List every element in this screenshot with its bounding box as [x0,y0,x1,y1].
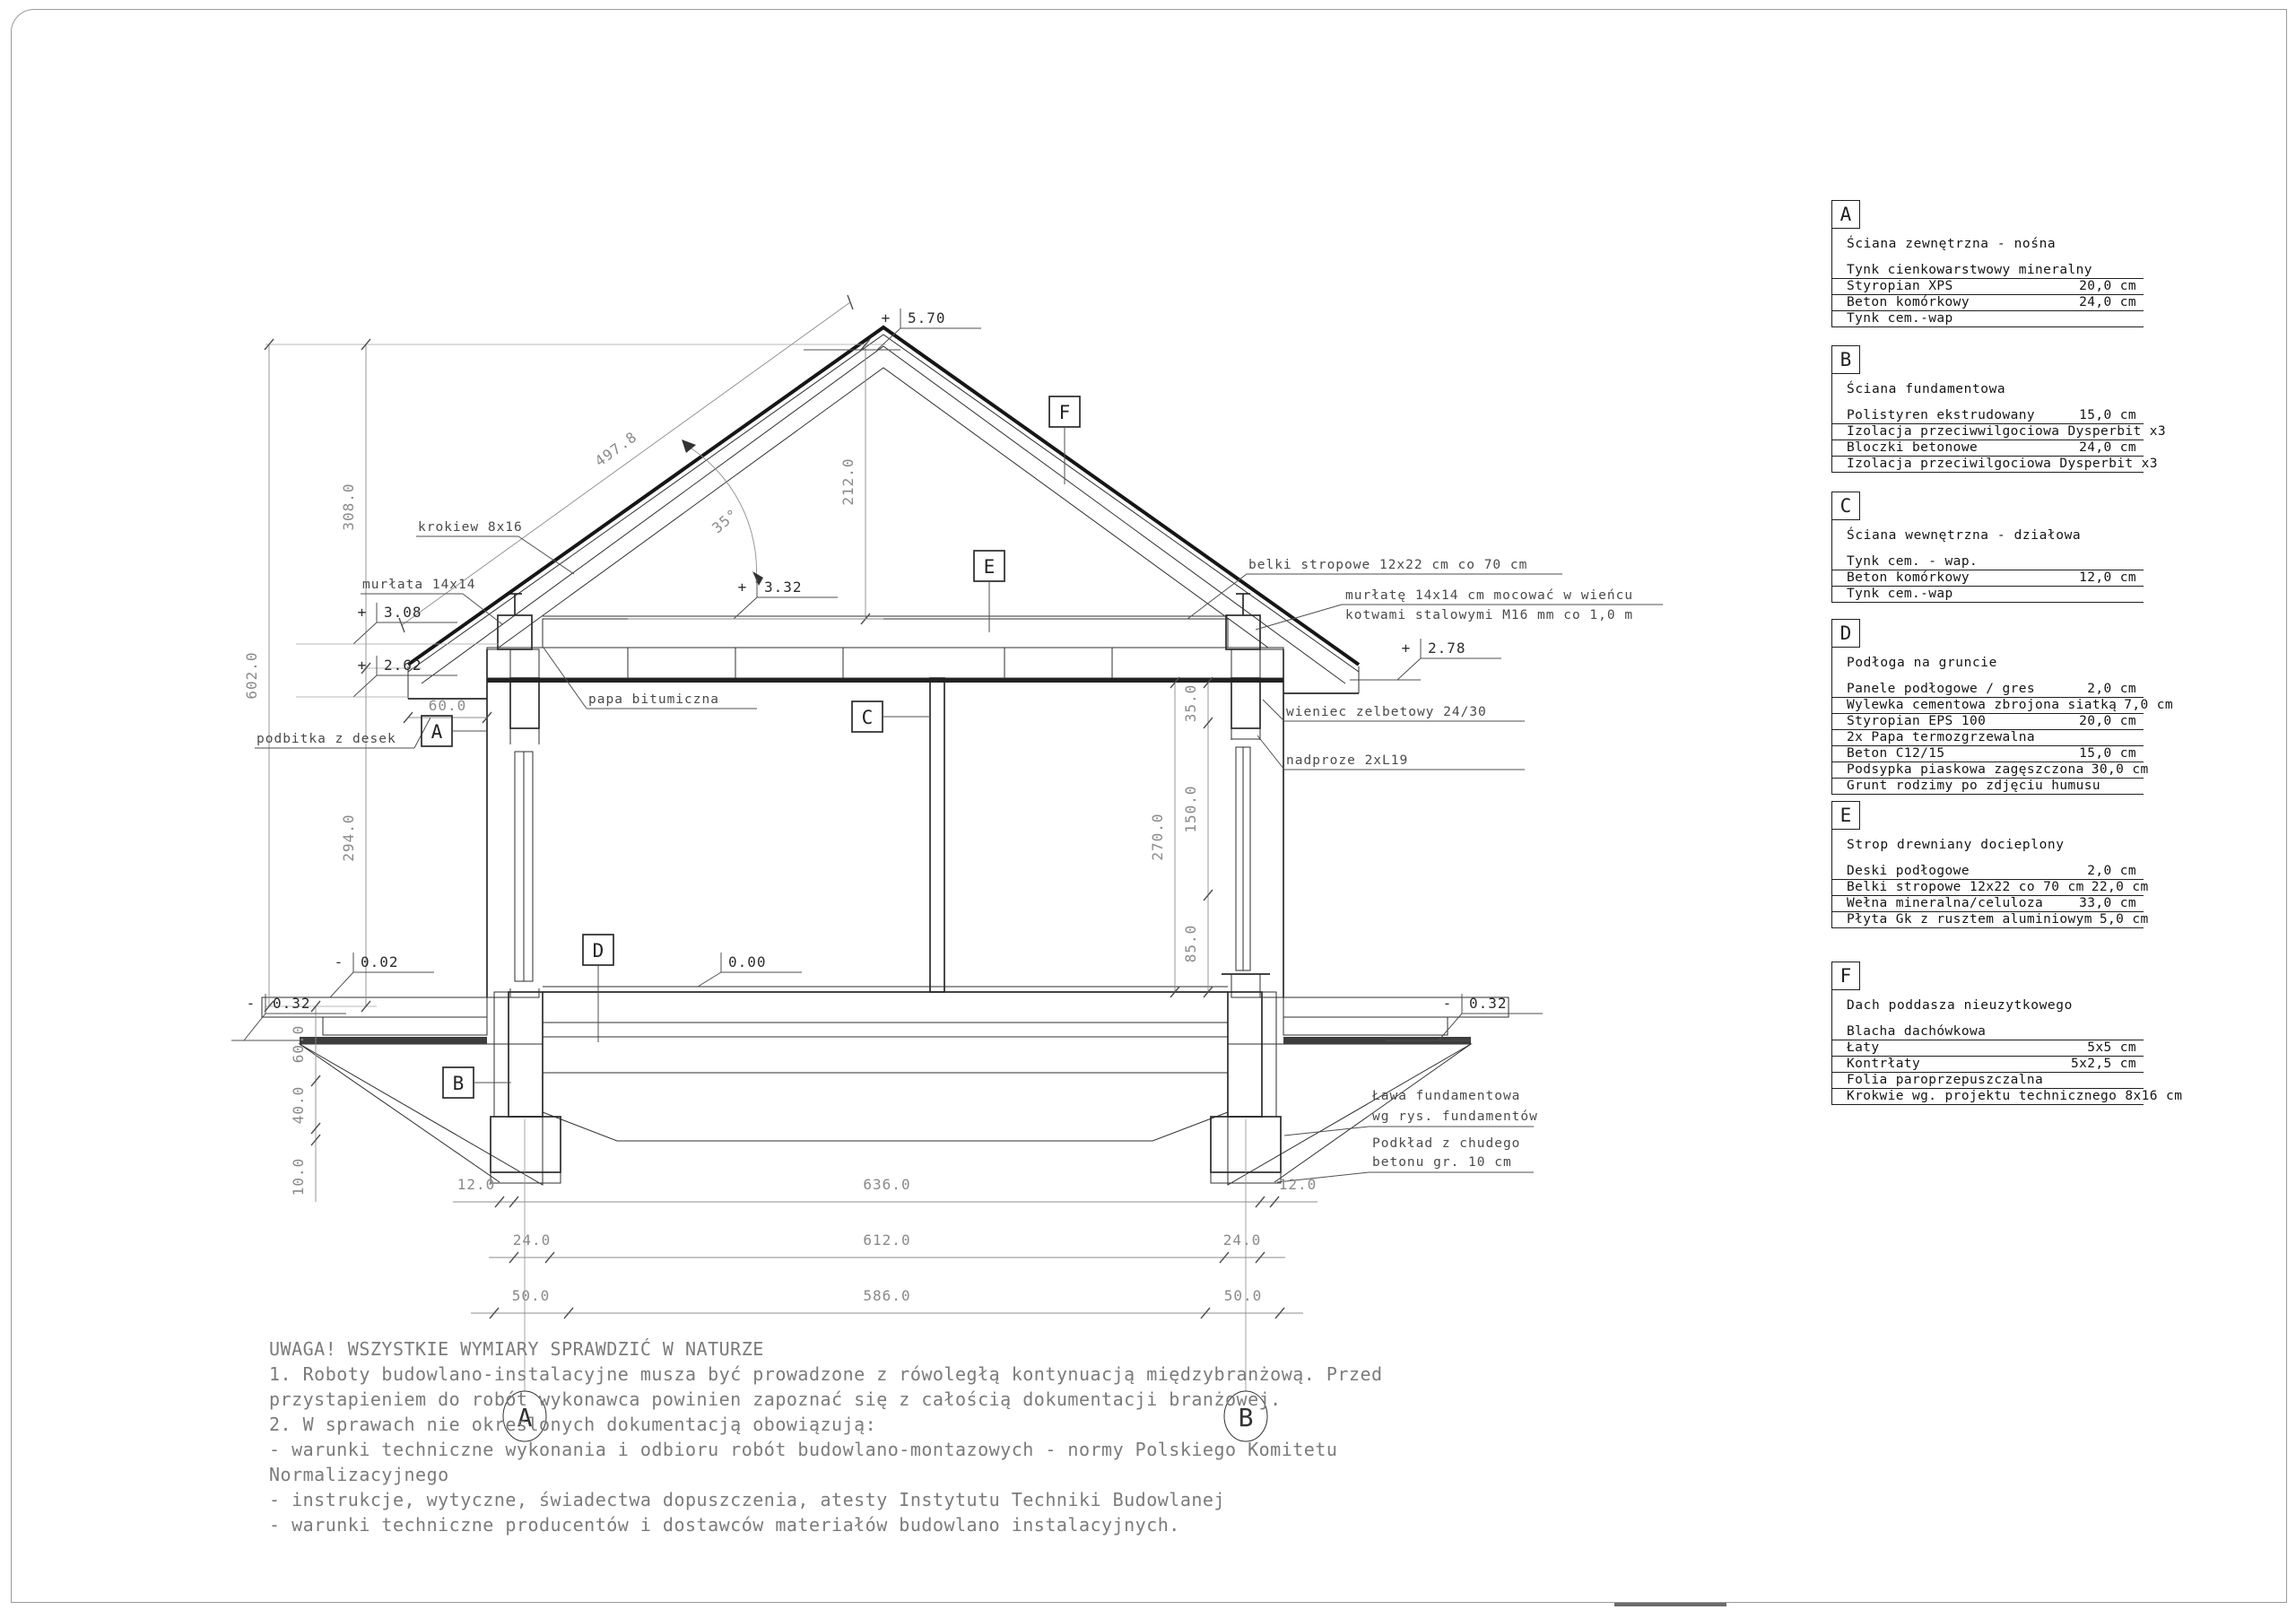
legend-row: Bloczki betonowe24,0 cm [1832,440,2144,457]
roof-sheathing-line [422,346,1345,683]
roof [408,327,1359,699]
legend-row: Tynk cem.-wap [1832,311,2144,327]
ceiling-insulation [487,648,1283,678]
legend-row: Polistyren ekstrudowany15,0 cm [1832,408,2144,424]
floor-insulation [543,992,1228,1023]
wall-plates [498,594,1260,649]
label-ring-beam: wieniec zelbetowy 24/30 [1286,705,1487,719]
ceiling-plaster [487,678,1283,683]
floor-on-ground [543,987,1228,1073]
legend-row: Deski podłogowe2,0 cm [1832,864,2144,880]
note-line: Normalizacyjnego [269,1464,1399,1489]
roof-covering [408,327,1359,665]
dim-b3-right: 50.0 [1224,1287,1263,1304]
legend-title-c: Ściana wewnętrzna - działowa [1832,519,2144,543]
legend-row: Płyta Gk z rusztem aluminiowym5,0 cm [1832,912,2144,928]
level-attic-sign: + [738,579,748,596]
legend-row: Folia paroprzepuszczalna [1832,1073,2144,1089]
marker-box-d: D [583,935,613,1042]
level-ridge-value: 5.70 [908,309,946,326]
note-line: UWAGA! WSZYSTKIE WYMIARY SPRAWDZIĆ W NAT… [269,1338,1399,1363]
angle-arrow-bottom [752,571,763,586]
roof-battens-line [408,335,1359,672]
svg-text:D: D [593,940,604,962]
floor-sand-bed [543,1037,1228,1073]
legend-title-d: Podłoga na gruncie [1832,647,2144,670]
leader-labels: krokiew 8x16 murłata 14x14 podbitka z de… [255,520,1663,1182]
dim-roof-angle: 35° [709,505,742,536]
dim-b3-center: 586.0 [863,1287,910,1304]
windows [508,740,1270,988]
label-lintel: nadproze 2xL19 [1286,753,1408,768]
level-ground-right-value: 0.32 [1469,995,1508,1012]
foundation-wall-left [509,992,543,1117]
dim-ridge-offset: 212.0 [839,457,857,505]
note-line: 1. Roboty budowlano-instalacyjne musza b… [269,1363,1399,1388]
marker-box-c: C [852,701,930,732]
legend-letter-c: C [1840,495,1852,517]
legend-row: Tynk cem.-wap [1832,587,2144,603]
dim-b1-left: 12.0 [457,1176,496,1193]
note-line: przystapieniem do robót wykonawca powini… [269,1388,1399,1414]
footing-left [491,1117,561,1172]
level-eave-right-sign: + [1402,640,1412,657]
level-terrace-value: 0.02 [361,953,399,970]
legend-letter-box-a: A [1831,200,1860,229]
svg-text:C: C [862,707,874,728]
legend-letter-box-e: E [1831,801,1860,830]
level-attic: + 3.32 [628,578,883,619]
legend-block-e: E Strop drewniany docieplony Deski podło… [1831,801,2144,928]
level-ground-right-sign: - [1443,995,1453,1012]
legend-title-f: Dach poddasza nieuzytkowego [1832,989,2144,1013]
foundations [491,992,1281,1183]
dim-b3-left: 50.0 [512,1287,551,1304]
label-plate-anchoring-1: murłatę 14x14 cm mocować w wieńcu [1345,588,1633,603]
legend-letter-box-f: F [1831,962,1860,990]
foundation-insulation-right [1262,992,1276,1117]
wall-left-insulation [487,649,510,997]
level-murlata-sign: + [358,604,368,621]
legend-block-a: A Ściana zewnętrzna - nośna Tynk cienkow… [1831,200,2144,327]
legend-letter-a: A [1840,204,1852,225]
label-plate-anchoring-2: kotwami stalowymi M16 mm co 1,0 m [1345,608,1633,622]
label-wall-plate: murłata 14x14 [362,578,476,592]
legend-row: Grunt rodzimy po zdjęciu humusu [1832,779,2144,795]
ring-beam-left [510,678,539,728]
legend-block-f: F Dach poddasza nieuzytkowego Blacha dac… [1831,962,2144,1105]
label-bitumen-felt: papa bitumiczna [588,692,719,707]
marker-box-a: A [422,716,487,746]
note-line: - instrukcje, wytyczne, świadectwa dopus… [269,1489,1399,1514]
label-blinding-1: Podkład z chudego [1372,1136,1520,1151]
general-notes: UWAGA! WSZYSTKIE WYMIARY SPRAWDZIĆ W NAT… [269,1338,1399,1539]
legend-row: Wełna mineralna/celuloza33,0 cm [1832,896,2144,912]
legend-row: Blacha dachówkowa [1832,1024,2144,1040]
level-ground-left-value: 0.32 [273,995,311,1012]
legend-title-e: Strop drewniany docieplony [1832,829,2144,852]
lintel-right [1231,728,1260,739]
label-footing-1: Ława fundamentowa [1371,1089,1520,1103]
legend-title-a: Ściana zewnętrzna - nośna [1832,228,2144,251]
legend-letter-box-d: D [1831,619,1860,648]
legend-row: Beton komórkowy24,0 cm [1832,295,2144,311]
foundation-wall-right [1228,992,1262,1117]
label-rafter: krokiew 8x16 [418,520,523,535]
partition-wall [930,678,944,992]
legend-row: Wylewka cementowa zbrojona siatką7,0 cm [1832,698,2144,714]
legend-row: 2x Papa termozgrzewalna [1832,730,2144,746]
legend-block-c: C Ściana wewnętrzna - działowa Tynk cem.… [1831,492,2144,603]
ceiling [487,616,1283,683]
dim-depth-1: 60.0 [290,1025,307,1064]
dim-b2-right: 24.0 [1223,1231,1262,1249]
dim-b1-right: 12.0 [1279,1176,1318,1193]
marker-box-e: E [974,551,1004,632]
ceiling-wool [543,619,1228,648]
membrane-left [300,1037,487,1044]
legend-letter-box-b: B [1831,345,1860,374]
dim-rafter-length: 497.8 [592,428,640,470]
note-line: 2. W sprawach nie okreslonych dokumentac… [269,1414,1399,1439]
legend-letter-f: F [1840,965,1852,987]
legend-row: Beton C12/1515,0 cm [1832,746,2144,762]
level-eave-left-value: 2.62 [384,657,422,674]
level-ridge-sign: + [882,309,891,326]
level-terrace: - 0.02 [330,953,434,997]
label-ceiling-joists: belki stropowe 12x22 cm co 70 cm [1248,558,1527,572]
marker-box-b: B [443,1067,511,1098]
legend-row: Styropian EPS 10020,0 cm [1832,714,2144,730]
level-ridge: + 5.70 [804,309,981,350]
level-eave-right: + 2.78 [1350,639,1501,680]
foundation-insulation-left [494,992,509,1117]
backfill-left [300,1044,543,1185]
legend-letter-e: E [1840,805,1852,826]
legend-row: Panele podłogowe / gres2,0 cm [1832,682,2144,698]
dim-right-top: 35.0 [1182,684,1199,723]
ceiling-beams [628,648,1112,678]
level-markers: + 5.70 + 3.32 + 3.08 + 2.62 + 2.78 [231,309,1543,1040]
paving-left-bottom [323,1017,487,1035]
dim-depth-2: 40.0 [290,1086,307,1125]
legend-row: Izolacja przeciwwilgociowa Dysperbit x3 [1832,424,2144,440]
svg-text:A: A [431,721,443,743]
window-right-opening [1229,740,1263,974]
svg-text:B: B [453,1073,465,1094]
note-line: - warunki techniczne wykonania i odbioru… [269,1439,1399,1464]
label-blinding-2: betonu gr. 10 cm [1372,1155,1512,1170]
legend-row: Łaty5x5 cm [1832,1040,2144,1057]
legend-row: Podsypka piaskowa zagęszczona30,0 cm [1832,762,2144,779]
dim-roof-zone: 308.0 [340,483,357,530]
rafter-underside [499,368,1268,648]
legend-row: Styropian XPS20,0 cm [1832,279,2144,295]
legend-row: Belki stropowe 12x22 co 70 cm22,0 cm [1832,880,2144,896]
level-floor: 0.00 [698,953,802,987]
dim-right-mid: 150.0 [1182,785,1199,832]
ring-beam-right [1231,678,1260,728]
level-floor-value: 0.00 [728,953,767,970]
dim-b2-center: 612.0 [863,1231,910,1249]
wall-right-insulation [1260,649,1283,997]
label-footing-2: wg rys. fundamentów [1372,1110,1538,1124]
architectural-section-sheet: { "drawing": { "levels": { "ridge": {"si… [0,0,2296,1610]
level-ground-left-sign: - [247,995,257,1012]
dimensions-bottom: 12.0 636.0 12.0 24.0 612.0 24.0 50.0 586… [453,1176,1318,1318]
level-terrace-sign: - [335,953,344,970]
legend-row: Krokwie wg. projektu technicznego 8x16 c… [1832,1089,2144,1105]
legend-row: Kontrłaty5x2,5 cm [1832,1057,2144,1073]
legend-block-b: B Ściana fundamentowa Polistyren ekstrud… [1831,345,2144,473]
legend-row: Izolacja przeciwilgociowa Dysperbit x3 [1832,457,2144,473]
dim-b1-center: 636.0 [863,1176,910,1193]
svg-text:F: F [1059,402,1071,423]
lean-concrete-left [491,1172,561,1183]
legend-title-b: Ściana fundamentowa [1832,373,2144,396]
legend-row: Beton komórkowy12,0 cm [1832,570,2144,587]
note-line: - warunki techniczne producentów i dosta… [269,1514,1399,1539]
dim-right-bot: 85.0 [1182,925,1199,963]
dim-depth-3: 10.0 [290,1158,307,1197]
dim-b2-left: 24.0 [513,1231,552,1249]
level-eave-left-sign: + [358,657,368,674]
level-attic-value: 3.32 [764,579,803,596]
paving-right-bottom [1283,1017,1448,1035]
svg-text:E: E [984,556,996,578]
dim-wall-zone: 294.0 [340,814,357,861]
label-soffit-boards: podbitka z desek [257,732,396,746]
ground-backfill [300,1044,1471,1185]
legend-row: Tynk cienkowarstwowy mineralny [1832,263,2144,279]
ground-under-floor [543,1073,1228,1141]
level-eave-right-value: 2.78 [1428,640,1466,657]
legend-letter-b: B [1840,349,1852,370]
legend-letter-d: D [1840,622,1852,644]
legend-letter-box-c: C [1831,492,1860,520]
dim-eave-overhang: 60.0 [429,697,467,714]
angle-arrow-top [682,439,696,453]
floor-slab [543,1023,1228,1037]
dim-right-total: 270.0 [1149,813,1166,860]
dimensions-right: 270.0 35.0 150.0 85.0 [1149,677,1213,997]
level-murlata-value: 3.08 [384,604,422,621]
legend-block-d: D Podłoga na gruncie Panele podłogowe / … [1831,619,2144,795]
excavation-slope-left [300,1044,500,1182]
dim-total-height: 602.0 [243,651,260,699]
legend-row: Tynk cem. - wap. [1832,554,2144,570]
level-eave-left: + 2.62 [296,656,457,697]
